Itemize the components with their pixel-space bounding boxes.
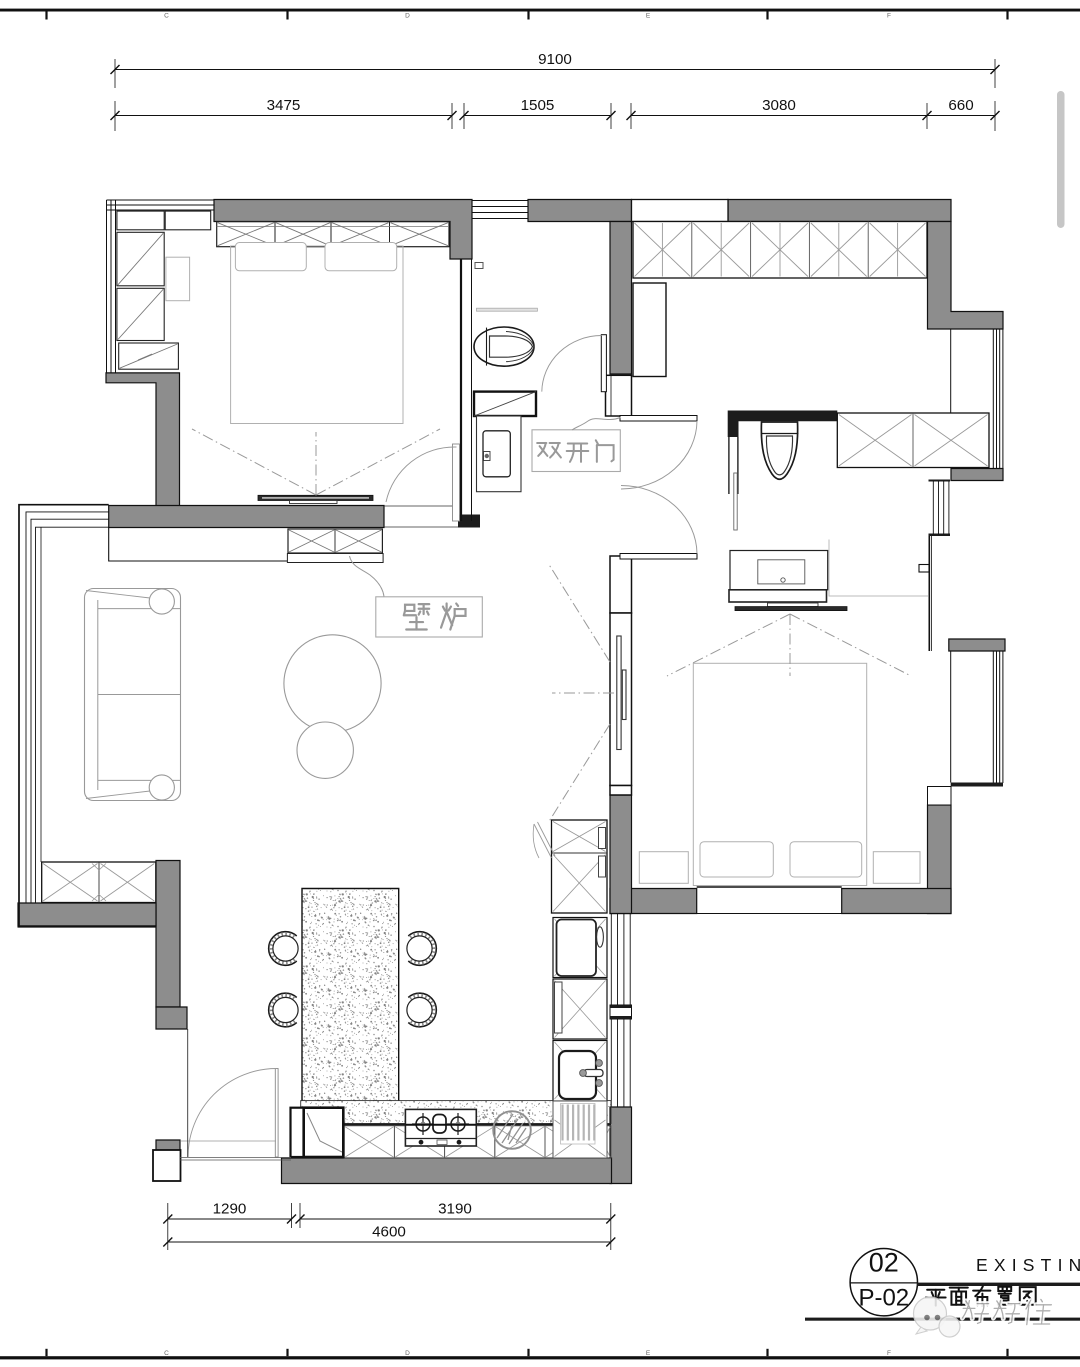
svg-text:660: 660 [948,97,973,114]
svg-text:C: C [164,13,169,20]
svg-text:F: F [887,13,891,20]
svg-text:P-02: P-02 [858,1285,909,1312]
svg-text:3190: 3190 [438,1201,472,1218]
svg-text:3475: 3475 [267,97,301,114]
svg-text:C: C [164,1350,169,1357]
svg-text:EXISTING: EXISTING [976,1255,1080,1275]
svg-text:4600: 4600 [372,1224,406,1241]
svg-text:D: D [405,1350,410,1357]
svg-text:9100: 9100 [538,51,572,68]
svg-text:F: F [887,1350,891,1357]
svg-text:1505: 1505 [521,97,555,114]
svg-text:1290: 1290 [213,1201,247,1218]
svg-text:02: 02 [869,1248,899,1278]
svg-text:3080: 3080 [762,97,796,114]
svg-text:E: E [646,1350,651,1357]
svg-text:E: E [646,13,651,20]
svg-text:D: D [405,13,410,20]
